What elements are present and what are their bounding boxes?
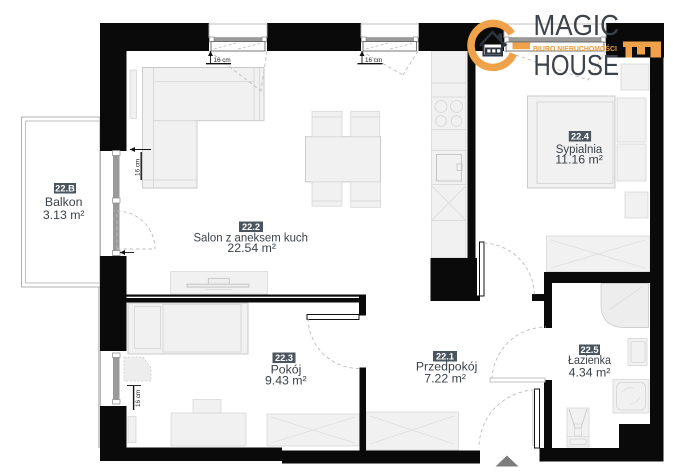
svg-text:9.43 m²: 9.43 m²	[265, 374, 307, 388]
svg-text:BIURO NIERUCHOMOŚCI: BIURO NIERUCHOMOŚCI	[533, 44, 617, 53]
svg-text:HOUSE: HOUSE	[534, 50, 620, 82]
svg-text:22.3: 22.3	[275, 353, 293, 363]
svg-text:11.16 m²: 11.16 m²	[555, 153, 603, 167]
svg-text:Balkon: Balkon	[45, 195, 83, 209]
svg-text:16 cm: 16 cm	[214, 57, 231, 64]
svg-text:7.22 m²: 7.22 m²	[424, 372, 466, 386]
svg-text:MAGIC: MAGIC	[534, 10, 620, 42]
svg-text:4.34 m²: 4.34 m²	[569, 366, 611, 380]
svg-text:3.13 m²: 3.13 m²	[43, 208, 85, 222]
svg-text:16 cm: 16 cm	[135, 390, 142, 407]
svg-text:22.4: 22.4	[571, 132, 590, 142]
svg-text:22.54 m²: 22.54 m²	[227, 241, 276, 255]
svg-text:16 cm: 16 cm	[365, 57, 382, 64]
svg-text:22.B: 22.B	[55, 184, 75, 194]
svg-text:16 cm: 16 cm	[135, 159, 142, 176]
